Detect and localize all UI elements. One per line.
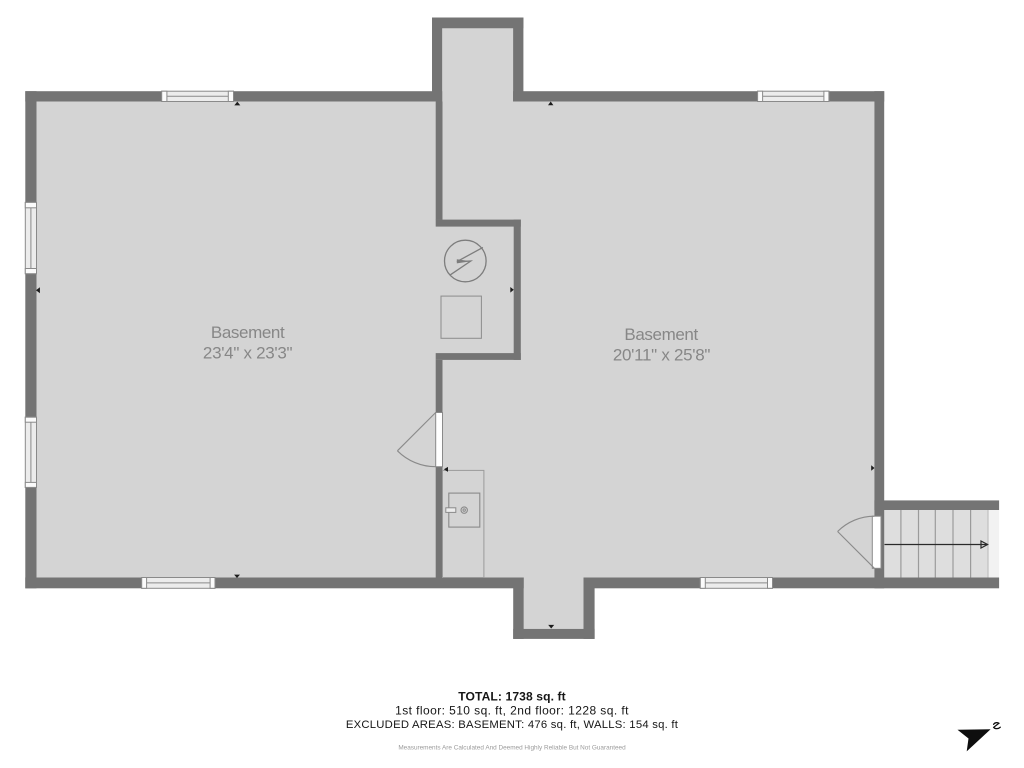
svg-text:Basement: Basement [211, 323, 285, 342]
svg-text:Basement: Basement [624, 325, 698, 344]
svg-text:1st floor: 510 sq. ft, 2nd flo: 1st floor: 510 sq. ft, 2nd floor: 1228 s… [395, 704, 629, 718]
svg-text:20'11" x 25'8": 20'11" x 25'8" [613, 346, 710, 365]
svg-text:23'4" x 23'3": 23'4" x 23'3" [203, 344, 293, 363]
svg-text:EXCLUDED AREAS: BASEMENT: 476: EXCLUDED AREAS: BASEMENT: 476 sq. ft, WA… [346, 719, 679, 731]
svg-text:TOTAL: 1738 sq. ft: TOTAL: 1738 sq. ft [458, 690, 566, 704]
svg-text:Measurements Are Calculated An: Measurements Are Calculated And Deemed H… [398, 745, 626, 752]
